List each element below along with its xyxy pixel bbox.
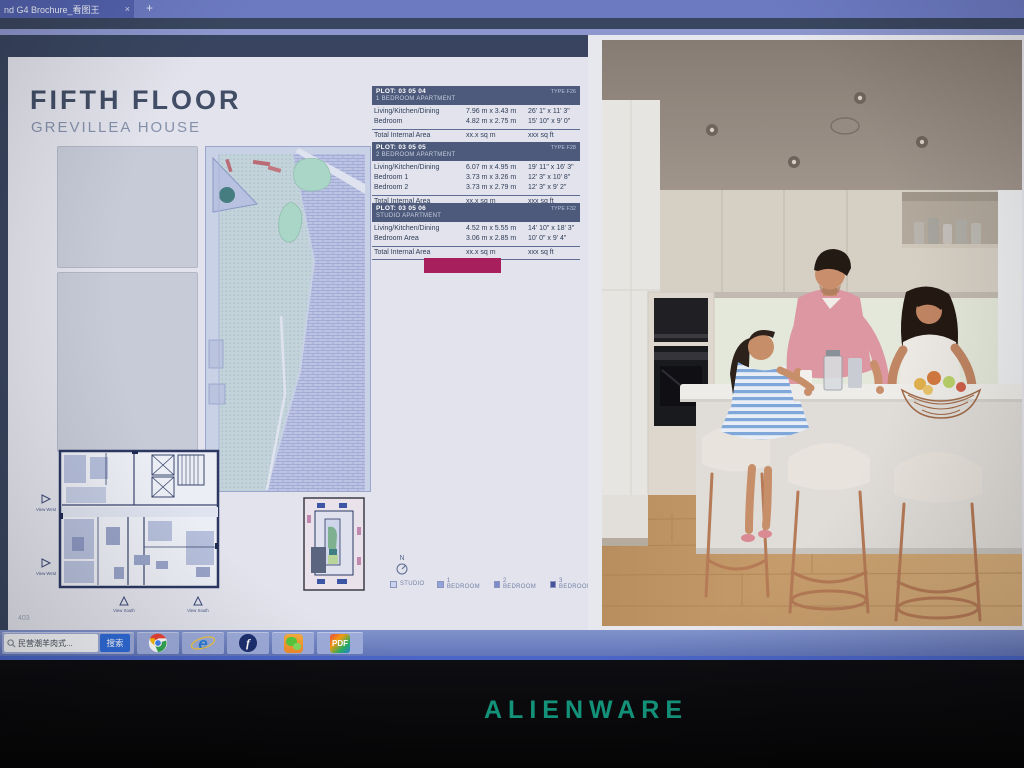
flash-icon: f (239, 634, 257, 652)
view-south-label: View South (113, 608, 135, 613)
legend-item-2bed: 2 BEDROOM (494, 578, 537, 590)
laptop-photo: nd G4 Brochure_看图王 × + FIFTH FLOOR GREVI… (0, 0, 1024, 768)
plot-number: PLOT: 03 05 04 (376, 88, 426, 95)
search-query-text: 民营潮羊肉式... (18, 638, 73, 649)
viewer-toolbar (0, 35, 588, 57)
type-label: TYPE F28 (551, 145, 576, 151)
table-row: Bedroom Area 3.06 m x 2.85 m 10' 0" x 9'… (372, 234, 580, 244)
chrome-icon (148, 633, 168, 653)
brochure-page: FIFTH FLOOR GREVILLEA HOUSE (8, 57, 588, 630)
taskbar-item-ie[interactable]: e (182, 632, 224, 654)
type-label: TYPE F26 (551, 89, 576, 95)
tab-title: nd G4 Brochure_看图王 (4, 3, 121, 16)
legend-swatch-3bed (550, 581, 556, 588)
kitchen-family-photo (602, 40, 1022, 626)
taskbar-item-flash[interactable]: f (227, 632, 269, 654)
laptop-screen: nd G4 Brochure_看图王 × + FIFTH FLOOR GREVI… (0, 0, 1024, 660)
view-west-label-2: View West (36, 571, 57, 576)
search-icon (7, 639, 16, 648)
site-plan-map (205, 146, 371, 492)
taskbar-search-tile: 民营潮羊肉式... 搜索 (2, 632, 134, 654)
new-tab-icon[interactable]: + (146, 1, 153, 15)
taskbar-item-wechat[interactable] (272, 632, 314, 654)
table-row: Bedroom 1 3.73 m x 3.26 m 12' 3" x 10' 8… (372, 173, 580, 183)
north-label: N (392, 555, 412, 562)
apartment-type: 1 BEDROOM APARTMENT (376, 96, 576, 102)
plot-number: PLOT: 03 05 06 (376, 205, 426, 212)
toolbar-strip (0, 18, 1024, 29)
apartment-type: 2 BEDROOM APARTMENT (376, 152, 576, 158)
table-row: Living/Kitchen/Dining 4.52 m x 5.55 m 14… (372, 224, 580, 234)
view-south-label-2: View South (187, 608, 209, 613)
table-row: Bedroom 2 3.73 m x 2.79 m 12' 3" x 9' 2" (372, 183, 580, 193)
view-west-label: View West (36, 507, 57, 512)
page-subtitle: GREVILLEA HOUSE (31, 119, 201, 136)
flat-table-1bed: PLOT: 03 05 04 TYPE F26 1 BEDROOM APARTM… (372, 86, 580, 143)
legend-swatch-2bed (494, 581, 500, 588)
flat-table-2bed: PLOT: 03 05 05 TYPE F28 2 BEDROOM APARTM… (372, 142, 580, 209)
tab-bar: nd G4 Brochure_看图王 × + (0, 0, 1024, 18)
placeholder-block-bottom (57, 272, 198, 452)
flat-table-studio: PLOT: 03 05 06 TYPE F32 STUDIO APARTMENT… (372, 203, 580, 260)
laptop-bezel: ALIENWARE (0, 660, 1024, 768)
table-total-row: Total Internal Area xx.x sq m xxx sq ft (372, 129, 580, 143)
ie-orbit-icon (190, 636, 216, 650)
taskbar-item-chrome[interactable] (137, 632, 179, 654)
wechat-icon (284, 634, 303, 653)
page-number: 403 (18, 615, 30, 622)
page-title: FIFTH FLOOR (30, 85, 241, 116)
taskbar: 民营潮羊肉式... 搜索 e (0, 630, 1024, 656)
table-row: Living/Kitchen/Dining 6.07 m x 4.95 m 19… (372, 163, 580, 173)
key-plan (303, 497, 365, 591)
legend-item-studio: STUDIO (390, 581, 424, 588)
photo-page (588, 35, 1024, 630)
legend-swatch-1bed (437, 581, 443, 588)
type-label: TYPE F32 (551, 206, 576, 212)
legend-swatch-studio (390, 581, 397, 588)
search-input[interactable]: 民营潮羊肉式... (4, 634, 98, 652)
plot-number: PLOT: 03 05 05 (376, 144, 426, 151)
unit-type-legend: STUDIO 1 BEDROOM 2 BEDROOM 3 BEDROOM (390, 578, 593, 590)
apartment-type: STUDIO APARTMENT (376, 213, 576, 219)
search-button[interactable]: 搜索 (100, 634, 130, 652)
floor-plan: View West View West View South View Sout… (36, 447, 224, 617)
legend-item-1bed: 1 BEDROOM (437, 578, 480, 590)
legend-item-3bed: 3 BEDROOM (550, 578, 593, 590)
redaction-bar (424, 258, 501, 273)
tab-brochure[interactable]: nd G4 Brochure_看图王 × (0, 0, 134, 18)
compass-icon (395, 562, 409, 576)
table-row: Bedroom 4.82 m x 2.75 m 15' 10" x 9' 0" (372, 117, 580, 127)
placeholder-block-top (57, 146, 198, 268)
alienware-logo: ALIENWARE (484, 696, 688, 725)
pdf-icon: PDF (330, 634, 350, 653)
taskbar-item-pdf[interactable]: PDF (317, 632, 363, 654)
tab-close-icon[interactable]: × (125, 4, 130, 14)
table-row: Living/Kitchen/Dining 7.96 m x 3.43 m 26… (372, 107, 580, 117)
